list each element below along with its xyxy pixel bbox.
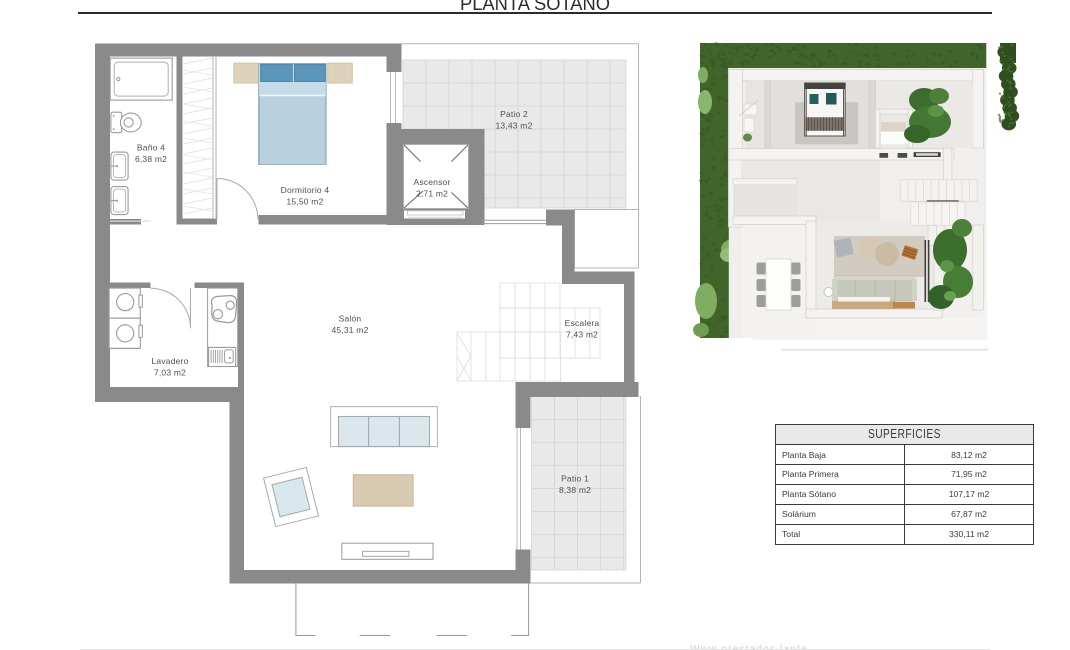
svg-text:Baño 4: Baño 4: [137, 143, 165, 153]
svg-text:Salón: Salón: [339, 313, 362, 323]
svg-text:7,03 m2: 7,03 m2: [154, 368, 186, 378]
svg-text:Escalera: Escalera: [565, 318, 600, 328]
svg-text:6,38 m2: 6,38 m2: [135, 154, 167, 164]
svg-text:Lavadero: Lavadero: [151, 356, 188, 366]
svg-text:13,43 m2: 13,43 m2: [495, 121, 532, 131]
svg-text:PLANTA SÓTANO: PLANTA SÓTANO: [460, 0, 610, 15]
svg-text:15,50 m2: 15,50 m2: [286, 197, 323, 207]
svg-text:Patio 1: Patio 1: [561, 474, 589, 484]
svg-text:8,38 m2: 8,38 m2: [559, 485, 591, 495]
svg-text:Patio 2: Patio 2: [500, 109, 528, 119]
svg-text:2,71 m2: 2,71 m2: [416, 189, 448, 199]
svg-text:45,31 m2: 45,31 m2: [331, 325, 368, 335]
svg-text:7,43 m2: 7,43 m2: [566, 330, 598, 340]
svg-text:Ascensor: Ascensor: [413, 177, 450, 187]
svg-text:Dormitorio 4: Dormitorio 4: [281, 185, 330, 195]
